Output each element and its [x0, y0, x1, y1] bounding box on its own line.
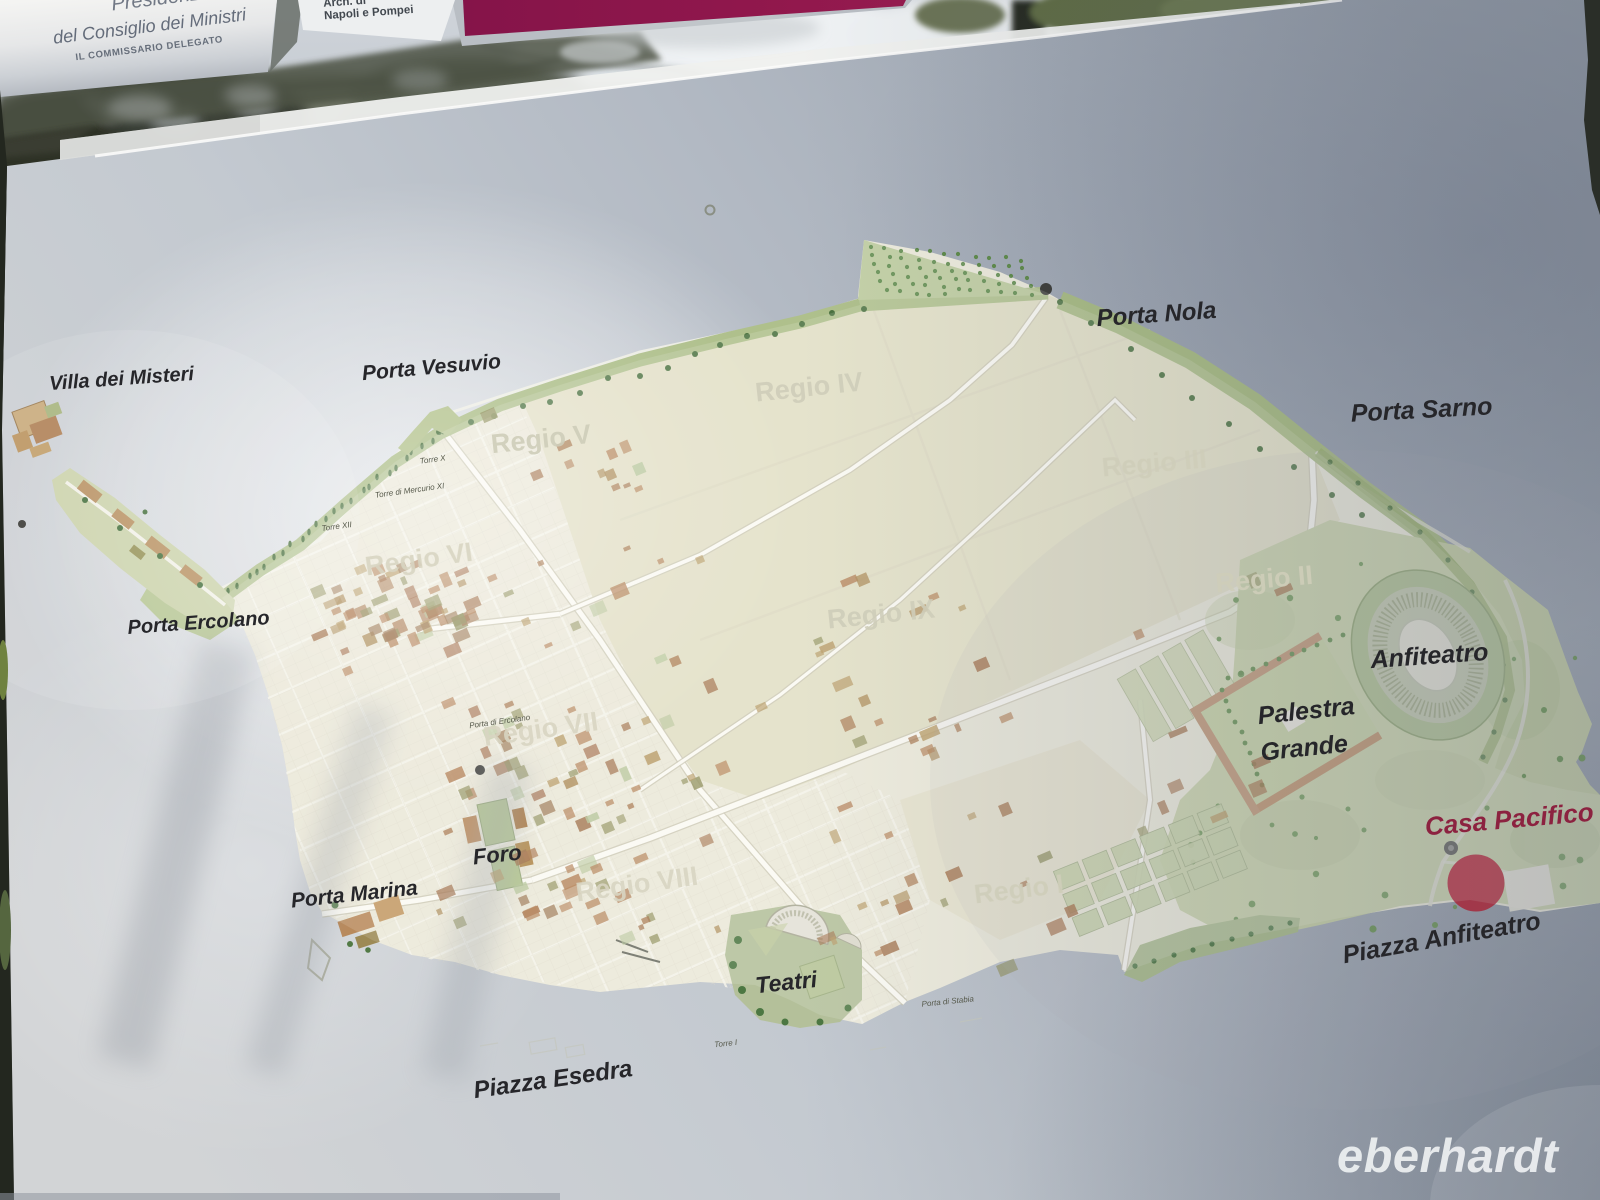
- svg-text:Foro: Foro: [472, 840, 523, 870]
- svg-text:eberhardt: eberhardt: [1337, 1129, 1560, 1182]
